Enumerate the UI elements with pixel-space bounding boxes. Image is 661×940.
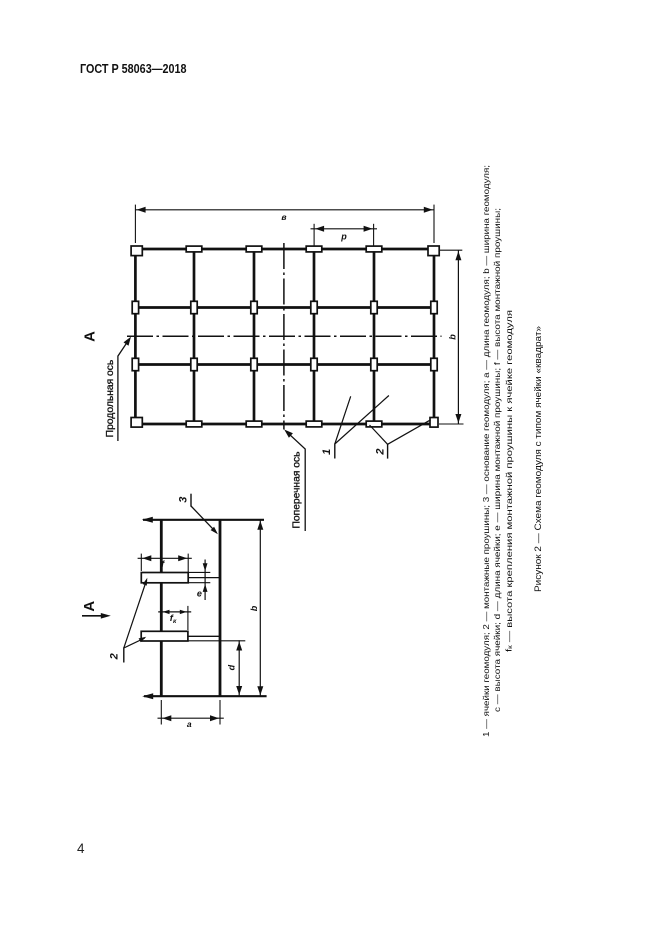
svg-text:b: b bbox=[447, 334, 457, 340]
svg-text:р: р bbox=[340, 232, 347, 242]
svg-text:ГОСТ Р 58063—2018: ГОСТ Р 58063—2018 bbox=[80, 62, 187, 76]
svg-text:2: 2 bbox=[109, 653, 121, 660]
svg-text:А: А bbox=[82, 331, 99, 342]
svg-text:Поперечная ось: Поперечная ось bbox=[292, 452, 303, 529]
svg-text:Продольная ось: Продольная ось bbox=[105, 360, 116, 438]
svg-text:d: d bbox=[227, 664, 237, 670]
svg-text:3: 3 bbox=[177, 497, 189, 503]
svg-text:1: 1 bbox=[321, 449, 333, 455]
svg-text:2: 2 bbox=[374, 448, 386, 455]
svg-text:b: b bbox=[249, 605, 259, 611]
svg-text:в: в bbox=[281, 212, 286, 222]
svg-text:4: 4 bbox=[77, 841, 85, 856]
svg-text:е: е bbox=[197, 589, 202, 599]
svg-text:Рисунок 2 — Схема геомодуля с: Рисунок 2 — Схема геомодуля с типом ячей… bbox=[533, 326, 544, 592]
svg-text:fк — высота крепления монтажно: fк — высота крепления монтажной проушины… bbox=[505, 310, 515, 652]
svg-text:а: а bbox=[187, 719, 192, 729]
svg-text:А: А bbox=[81, 601, 98, 612]
svg-text:с — высота ячейки; d — длина я: с — высота ячейки; d — длина ячейки; е —… bbox=[493, 208, 502, 712]
svg-text:1 — ячейки геомодуля; 2 — монт: 1 — ячейки геомодуля; 2 — монтажные проу… bbox=[482, 165, 491, 737]
